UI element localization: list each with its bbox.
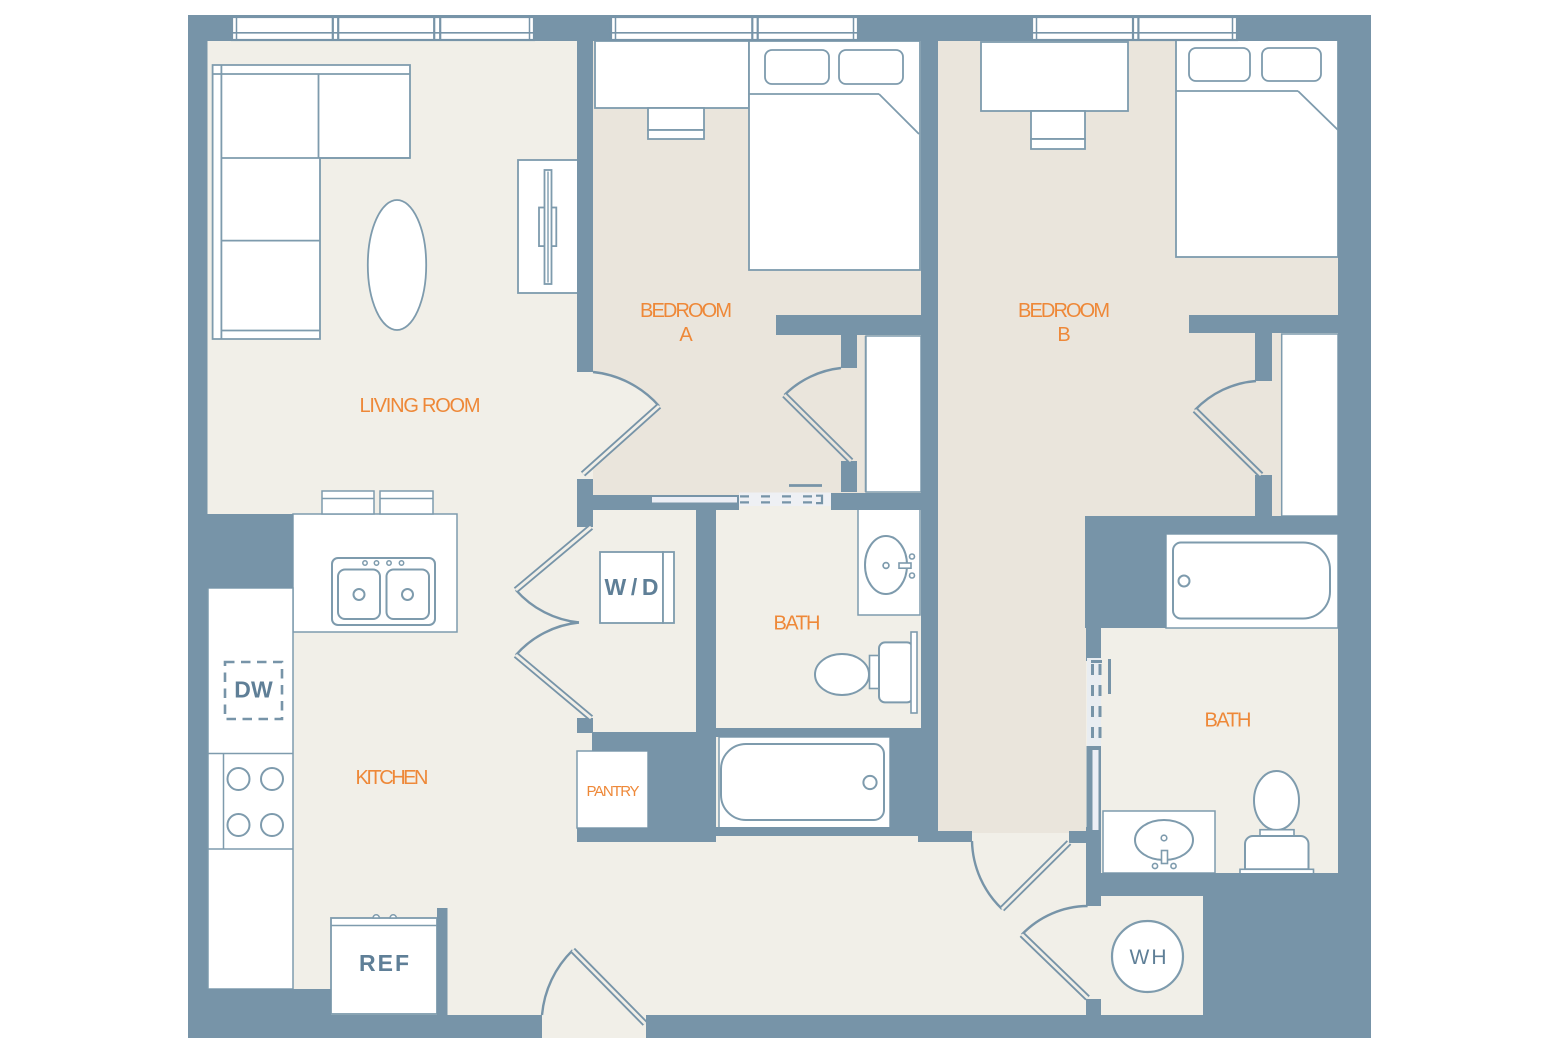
svg-text:WH: WH [1130, 946, 1167, 969]
svg-text:BEDROOM: BEDROOM [1018, 300, 1110, 322]
svg-text:REF: REF [359, 950, 409, 976]
svg-text:BEDROOM: BEDROOM [640, 300, 732, 322]
svg-text:BATH: BATH [774, 613, 821, 635]
svg-text:BATH: BATH [1205, 710, 1252, 732]
svg-text:A: A [679, 324, 693, 346]
svg-text:B: B [1057, 324, 1070, 346]
svg-text:DW: DW [234, 677, 273, 703]
svg-text:KITCHEN: KITCHEN [356, 767, 429, 789]
svg-text:PANTRY: PANTRY [587, 783, 640, 800]
svg-text:W/D: W/D [605, 574, 659, 600]
svg-text:LIVING ROOM: LIVING ROOM [360, 395, 481, 417]
